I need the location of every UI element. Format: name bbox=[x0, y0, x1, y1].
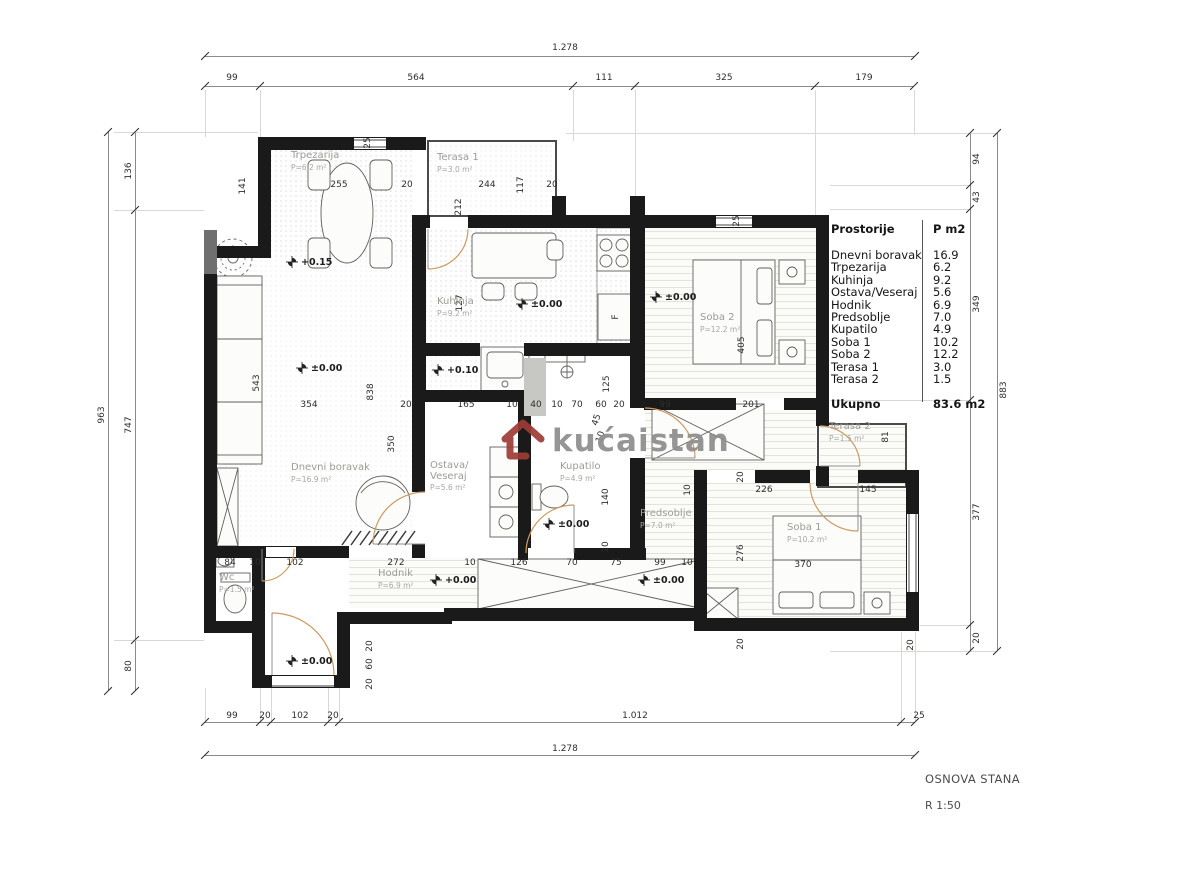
level-marker: ±0.00 bbox=[543, 518, 589, 530]
room-name: Wc bbox=[219, 573, 254, 584]
room-label: KuhinjaP=9.2 m² bbox=[437, 297, 474, 319]
kitchen-sink bbox=[481, 347, 529, 391]
room-area: P=5.6 m² bbox=[430, 483, 469, 494]
legend-row: Trpezarija6.2 bbox=[831, 261, 1001, 273]
level-marker: +0.00 bbox=[430, 574, 476, 586]
legend-row: Soba 212.2 bbox=[831, 348, 1001, 360]
floor-plan-canvas: 1.278995641113251799920102201.012251.278… bbox=[0, 0, 1200, 878]
legend-rows: Dnevni boravak16.9Trpezarija6.2Kuhinja9.… bbox=[831, 249, 1001, 385]
room-label: Soba 1P=10.2 m² bbox=[787, 523, 827, 545]
legend-room-name: Ostava/Veseraj bbox=[831, 286, 923, 298]
room-area: P=6.9 m² bbox=[378, 581, 413, 592]
level-value: ±0.00 bbox=[653, 575, 684, 586]
legend-room-name: Terasa 2 bbox=[831, 373, 923, 385]
room-area: P=16.9 m² bbox=[291, 475, 370, 486]
room-label: Ostava/ VeserajP=5.6 m² bbox=[430, 461, 469, 494]
legend-room-name: Kupatilo bbox=[831, 323, 923, 335]
legend-row: Kupatilo4.9 bbox=[831, 323, 1001, 335]
room-area: P=4.9 m² bbox=[560, 474, 600, 485]
fridge bbox=[598, 294, 632, 340]
house-icon bbox=[500, 417, 546, 465]
room-label: PredsobljeP=7.0 m² bbox=[640, 509, 692, 531]
room-name: Dnevni boravak bbox=[291, 463, 370, 474]
sofa bbox=[217, 276, 262, 464]
room-label: KupatiloP=4.9 m² bbox=[560, 462, 600, 484]
title-block: OSNOVA STANA R 1:50 bbox=[925, 772, 1020, 812]
level-marker: ±0.00 bbox=[516, 298, 562, 310]
legend-total-label: Ukupno bbox=[831, 397, 923, 411]
level-value: ±0.00 bbox=[558, 519, 589, 530]
room-name: Ostava/ Veseraj bbox=[430, 461, 469, 482]
room-area: P=3.0 m² bbox=[437, 165, 479, 176]
room-area: P=1.5 m² bbox=[219, 585, 254, 596]
legend-room-area: 1.5 bbox=[923, 373, 951, 385]
level-value: +0.15 bbox=[301, 257, 332, 268]
level-value: ±0.00 bbox=[665, 292, 696, 303]
room-name: Kuhinja bbox=[437, 297, 474, 308]
room-label: WcP=1.5 m² bbox=[219, 573, 254, 595]
room-name: Terasa 2 bbox=[829, 422, 871, 433]
room-name: Terasa 1 bbox=[437, 153, 479, 164]
room-label: Dnevni boravakP=16.9 m² bbox=[291, 463, 370, 485]
legend-row: Ostava/Veseraj5.6 bbox=[831, 286, 1001, 298]
room-name: Soba 2 bbox=[700, 313, 740, 324]
room-label: TrpezarijaP=6.2 m² bbox=[291, 151, 339, 173]
legend-room-name: Soba 2 bbox=[831, 348, 923, 360]
level-marker: ±0.00 bbox=[286, 655, 332, 667]
room-area: P=1.5 m² bbox=[829, 434, 871, 445]
legend-table: Prostorije P m2 Dnevni boravak16.9Trpeza… bbox=[831, 222, 1001, 411]
tv-cabinet bbox=[217, 468, 238, 546]
legend-total-row: Ukupno 83.6 m2 bbox=[831, 397, 1001, 411]
room-area: P=10.2 m² bbox=[787, 535, 827, 546]
legend-header-name: Prostorije bbox=[831, 222, 923, 236]
legend-room-name: Trpezarija bbox=[831, 261, 923, 273]
watermark: kućaistan bbox=[500, 417, 730, 465]
level-value: +0.00 bbox=[445, 575, 476, 586]
stove bbox=[597, 235, 631, 271]
legend-row: Terasa 21.5 bbox=[831, 373, 1001, 385]
level-value: ±0.00 bbox=[301, 656, 332, 667]
legend-room-area: 5.6 bbox=[923, 286, 951, 298]
level-marker: +0.15 bbox=[286, 256, 332, 268]
room-area: P=9.2 m² bbox=[437, 309, 474, 320]
level-value: ±0.00 bbox=[311, 363, 342, 374]
watermark-text: kućaistan bbox=[552, 423, 730, 459]
legend-room-area: 4.9 bbox=[923, 323, 951, 335]
room-label: Terasa 2P=1.5 m² bbox=[829, 422, 871, 444]
level-marker: ±0.00 bbox=[296, 362, 342, 374]
level-marker: ±0.00 bbox=[638, 574, 684, 586]
level-marker: ±0.00 bbox=[650, 291, 696, 303]
room-label: Soba 2P=12.2 m² bbox=[700, 313, 740, 335]
room-name: Trpezarija bbox=[291, 151, 339, 162]
room-label: Terasa 1P=3.0 m² bbox=[437, 153, 479, 175]
level-value: +0.10 bbox=[447, 365, 478, 376]
drawing-scale: R 1:50 bbox=[925, 799, 1020, 812]
room-label: HodnikP=6.9 m² bbox=[378, 569, 413, 591]
level-value: ±0.00 bbox=[531, 299, 562, 310]
legend-total-value: 83.6 m2 bbox=[923, 397, 985, 411]
room-area: P=12.2 m² bbox=[700, 325, 740, 336]
room-name: Predsoblje bbox=[640, 509, 692, 520]
legend-room-area: 6.2 bbox=[923, 261, 951, 273]
room-area: P=6.2 m² bbox=[291, 163, 339, 174]
legend-divider bbox=[922, 220, 923, 402]
legend-header: Prostorije P m2 bbox=[831, 222, 1001, 236]
legend-room-area: 12.2 bbox=[923, 348, 959, 360]
room-name: Soba 1 bbox=[787, 523, 827, 534]
room-area: P=7.0 m² bbox=[640, 521, 692, 532]
level-marker: +0.10 bbox=[432, 364, 478, 376]
legend-header-area: P m2 bbox=[923, 222, 965, 236]
room-name: Hodnik bbox=[378, 569, 413, 580]
drawing-title: OSNOVA STANA bbox=[925, 772, 1020, 786]
